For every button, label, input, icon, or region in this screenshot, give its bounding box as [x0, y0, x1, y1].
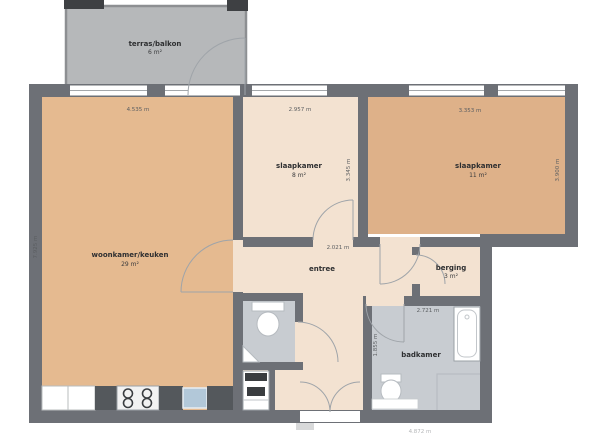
wall: [295, 293, 303, 322]
living-room-label: woonkamer/keuken: [92, 251, 169, 259]
bedroom-right-area: 11 m²: [469, 172, 487, 179]
wall: [420, 237, 480, 247]
doorway: [366, 296, 404, 306]
counter-segment: [159, 386, 183, 410]
wall: [480, 234, 578, 247]
wall: [404, 296, 492, 306]
doorway: [233, 240, 243, 292]
balcony-label: terras/balkon: [129, 40, 182, 48]
dim-bedroom-mid-height: 3.345 m: [346, 159, 352, 182]
balcony-door-opening: [188, 86, 240, 96]
storage-area: 3 m²: [444, 273, 459, 280]
dim-living-height: 7.925 m: [33, 236, 39, 259]
dim-bedroom-right-width: 3.353 m: [459, 108, 482, 114]
dim-bedroom-right-height: 3.900 m: [555, 159, 561, 182]
counter-segment: [95, 386, 117, 410]
floor-plan-drawing: terras/balkon 6 m² woonkamer/keuken 29 m…: [0, 0, 600, 448]
wall: [243, 237, 313, 247]
kitchen-counter: [42, 386, 233, 410]
entrance-threshold: [296, 423, 314, 430]
bedroom-right-label: slaapkamer: [455, 162, 501, 170]
stove-icon: [117, 386, 159, 410]
wall: [237, 362, 303, 370]
hall-label: entree: [309, 265, 335, 273]
washbasin-counter: [372, 399, 418, 409]
doorway: [295, 322, 303, 362]
dim-bathroom-width: 2.721 m: [417, 308, 440, 314]
front-door-opening: [300, 411, 360, 422]
wall: [353, 237, 380, 247]
toilet-icon: [257, 312, 279, 336]
dim-bottom-width: 4.872 m: [409, 429, 432, 435]
wall: [412, 284, 420, 296]
balcony-area: 6 m²: [148, 49, 163, 56]
meter-cupboard: [243, 371, 269, 410]
living-room-area: 29 m²: [121, 261, 139, 268]
balcony-wall-stub-right: [227, 0, 248, 11]
wall: [237, 293, 303, 301]
dim-living-width: 4.535 m: [127, 107, 150, 113]
dim-bedroom-mid-width: 2.957 m: [289, 107, 312, 113]
bedroom-mid-label: slaapkamer: [276, 162, 322, 170]
counter-segment: [207, 386, 233, 410]
bedroom-mid-area: 8 m²: [292, 172, 307, 179]
bathroom-label: badkamer: [401, 351, 441, 359]
wall: [233, 97, 243, 240]
wall: [29, 410, 492, 423]
doorway: [412, 255, 420, 284]
boiler-icon: [247, 387, 265, 396]
sink-icon: [183, 388, 207, 408]
wall: [233, 292, 243, 410]
dim-bathroom-height: 1.855 m: [373, 334, 379, 357]
toilet-tank: [252, 302, 284, 311]
floor-plan-page: terras/balkon 6 m² woonkamer/keuken 29 m…: [0, 0, 600, 448]
cupboard-shelf-dark: [245, 373, 267, 381]
dim-hall-width: 2.021 m: [327, 245, 350, 251]
wall: [565, 84, 578, 247]
storage-label: berging: [436, 264, 467, 272]
doorway: [380, 237, 420, 247]
wall: [358, 97, 368, 237]
wall: [480, 234, 492, 423]
balcony-wall-stub-left: [64, 0, 104, 9]
